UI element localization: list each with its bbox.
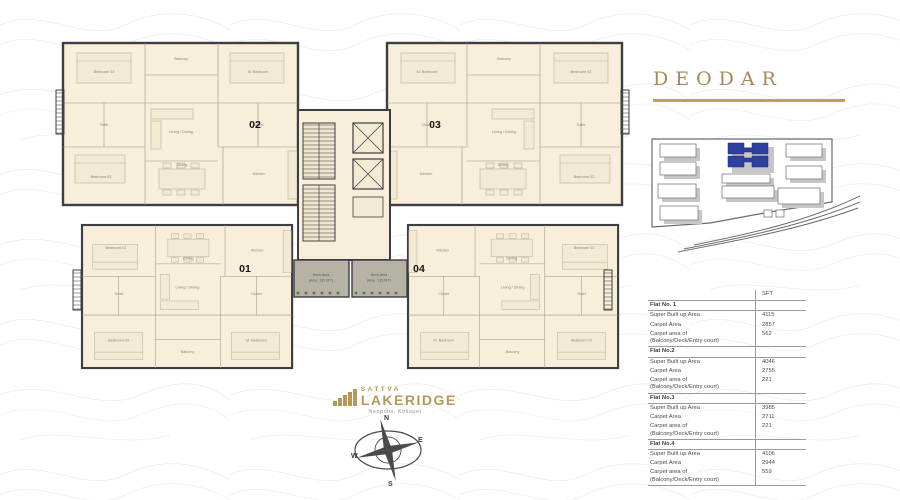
plant-icon [329,292,332,295]
lift-icon [353,159,383,189]
plant-icon [321,292,324,295]
table-corner [648,290,756,301]
furniture-icon [177,190,185,195]
room-label: Toilet [577,123,587,127]
logo-name: LAKERIDGE [361,393,457,407]
deck-area-value: (Area : 135 SFT) [309,279,333,283]
room-label: Closet [251,292,263,296]
furniture-icon [283,230,291,272]
room-label: Toilet [100,123,110,127]
page: { "title": { "text": "DEODAR" }, "logo":… [0,0,900,500]
table-row: Super Built up Area4106 [648,449,806,459]
furniture-icon [196,258,203,262]
furniture-icon [151,109,193,119]
unit-number-02: 02 [249,119,261,131]
room-label: Balcony [506,350,520,354]
furniture-icon [95,333,143,359]
furniture-icon [524,121,534,149]
room-label: Kitchen [253,172,266,176]
developer-logo: SATTVA LAKERIDGE Neopolis, Kokapet [322,386,468,415]
table-row: Flat No.2 [648,347,806,357]
furniture-icon [151,121,161,149]
table-row: Super Built up Area3985 [648,403,806,413]
furniture-icon [184,234,191,238]
table-row: Flat No.4 [648,439,806,449]
furniture-icon [191,163,199,168]
plant-icon [297,292,300,295]
room-label: M. Bedroom [433,339,454,343]
plant-icon [355,292,358,295]
furniture-icon [554,53,608,83]
furniture-icon [163,163,171,168]
furniture-icon [168,239,209,257]
deck-area-value: (Area : 135 SFT) [367,279,391,283]
table-row: Carpet Area2711 [648,413,806,422]
site-key-plan [648,136,860,259]
deck-areas: Deck Area (Area : 135 SFT) Deck Area (Ar… [294,260,407,297]
furniture-icon [421,333,469,359]
table-row: Flat No.3 [648,393,806,403]
room-label: Dining [183,256,194,260]
table-row: Super Built up Area4115 [648,311,806,321]
room-label: Bedroom 03 [571,70,592,74]
deck-label: Deck Area [313,273,330,277]
floor-plan: Bedroom 03BalconyM. BedroomLiving / Dini… [55,35,630,385]
furniture-icon [159,169,205,189]
room-label: Kitchen [251,248,264,252]
room-label: M. Bedroom [248,70,269,74]
plant-icon [387,292,390,295]
furniture-icon [161,274,170,299]
furniture-icon [497,258,504,262]
room-label: Toilet [577,292,587,296]
compass-e-label: E [418,437,423,444]
compass-w-label: W [351,453,358,460]
room-label: Toilet [114,292,124,296]
room-label: Living / Dining [501,286,525,290]
plant-icon [379,292,382,295]
furniture-icon [497,234,504,238]
room-label: Dining [177,163,188,167]
table-row: Carpet Area2857 [648,321,806,330]
table-row: Flat No. 1 [648,301,806,311]
room-label: Living / Dining [169,130,193,134]
plant-icon [363,292,366,295]
plant-icon [313,292,316,295]
furniture-icon [77,53,131,83]
unit-number-03: 03 [429,119,441,131]
logo-bars-icon [333,389,357,407]
furniture-icon [500,190,508,195]
room-label: Living / Dining [176,286,200,290]
room-label: Bedroom 03 [108,339,129,343]
furniture-icon [522,258,529,262]
furniture-icon [401,53,455,83]
furniture-icon [171,234,178,238]
room-label: Bedroom 02 [574,246,595,250]
room-label: Bedroom 02 [91,175,112,179]
unit-number-04: 04 [413,263,425,275]
furniture-icon [530,274,539,299]
deck-label: Deck Area [371,273,388,277]
plant-icon [305,292,308,295]
furniture-icon [557,333,605,359]
furniture-icon [509,234,516,238]
room-label: M. Bedroom [417,70,438,74]
plant-icon [371,292,374,295]
area-statement-table: SFT Flat No. 1 Super Built up Area4115 C… [648,290,806,486]
table-row: Carpet Area2755 [648,367,806,376]
unit-number-01: 01 [239,263,251,275]
room-label: Balcony [174,57,188,61]
furniture-icon [514,190,522,195]
furniture-icon [161,301,199,310]
table-row: Carpet area of (Balcony/Deck/Entry court… [648,422,806,439]
furniture-icon [514,163,522,168]
room-label: M. Bedroom [246,339,267,343]
room-label: Bedroom 02 [106,246,127,250]
furniture-icon [502,301,540,310]
table-row: Carpet Area2944 [648,459,806,468]
room-label: Bedroom 03 [94,70,115,74]
furniture-icon [191,190,199,195]
room-label: Balcony [181,350,195,354]
plant-icon [337,292,340,295]
furniture-icon [486,190,494,195]
furniture-icon [522,234,529,238]
furniture-icon [230,53,284,83]
furniture-icon [486,163,494,168]
compass-rose: N E S W [350,412,426,493]
furniture-icon [231,333,279,359]
compass-star-icon [350,412,426,488]
room-label: Balcony [497,57,511,61]
room-label: Kitchen [437,248,450,252]
furniture-icon [171,258,178,262]
page-title: DEODAR [653,68,783,90]
title-underline [653,99,845,102]
compass-s-label: S [388,481,393,488]
furniture-icon [288,151,297,199]
central-core [298,110,390,260]
room-label: Bedroom 03 [571,339,592,343]
furniture-icon [480,169,526,189]
room-label: Dining [506,256,517,260]
sft-header: SFT [756,290,807,301]
furniture-icon [492,109,534,119]
room-label: Bedroom 02 [574,175,595,179]
table-row: Carpet area of (Balcony/Deck/Entry court… [648,330,806,347]
compass-n-label: N [384,415,389,422]
furniture-icon [163,190,171,195]
room-label: Living / Dining [492,130,516,134]
furniture-icon [491,239,532,257]
lift-icon [353,123,383,153]
room-label: Dining [498,163,509,167]
furniture-icon [196,234,203,238]
table-row: Carpet area of (Balcony/Deck/Entry court… [648,468,806,485]
room-label: Kitchen [420,172,433,176]
room-label: Closet [438,292,450,296]
plant-icon [395,292,398,295]
table-row: Carpet area of (Balcony/Deck/Entry court… [648,376,806,393]
table-row: Super Built up Area4046 [648,357,806,367]
